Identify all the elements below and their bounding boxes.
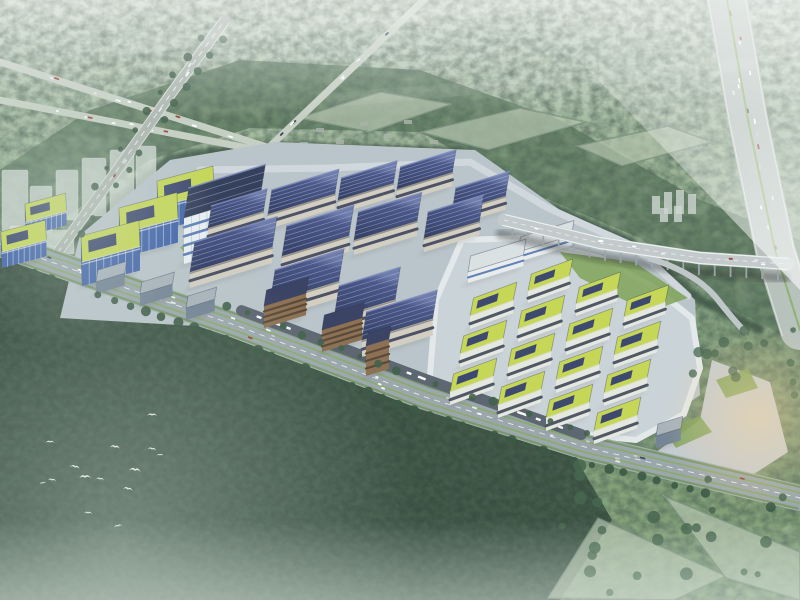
aerial-rendering-stage: [0, 0, 800, 600]
scene-rendering: [0, 0, 800, 600]
atmosphere-haze: [0, 0, 800, 600]
global-tint: [0, 0, 800, 600]
